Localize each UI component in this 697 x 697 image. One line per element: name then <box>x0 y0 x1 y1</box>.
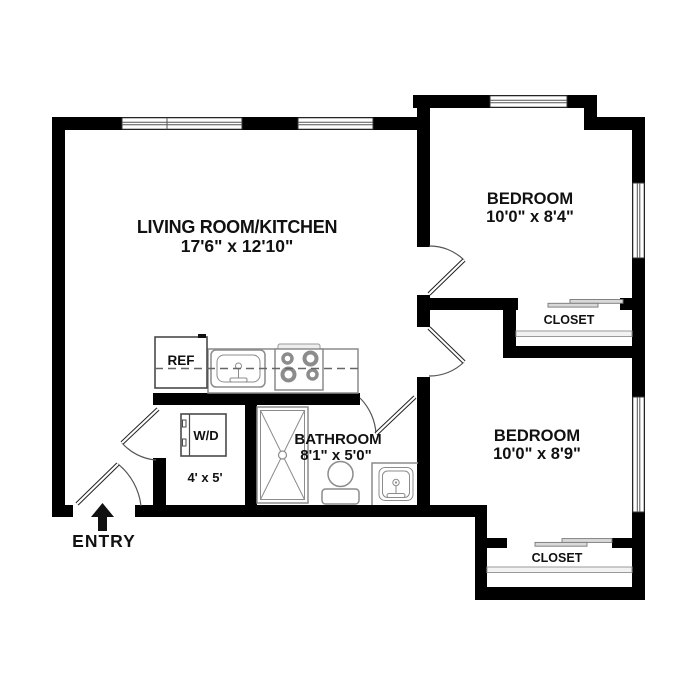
window-glass <box>490 96 567 107</box>
bedroom2-door-leaf-inner <box>429 328 464 362</box>
laundry-door-swing-arc <box>122 443 156 460</box>
closet2-shelf <box>487 567 632 573</box>
bathroom-dimensions: 8'1" x 5'0" <box>300 447 371 464</box>
living-room-dimensions: 17'6" x 12'10" <box>181 236 294 256</box>
bedroom1-door <box>429 246 464 294</box>
floor-plan: REF <box>0 0 697 697</box>
sink-faucet-dot <box>395 481 397 483</box>
window-glass <box>122 118 242 129</box>
closet1-label: CLOSET <box>544 313 595 327</box>
washer-dryer-hinge <box>183 420 187 427</box>
toilet-bowl <box>328 462 353 487</box>
entry-door <box>77 464 141 506</box>
walls <box>52 95 645 600</box>
sink-faucet-base <box>387 494 405 498</box>
bedroom2-door <box>429 328 464 376</box>
stove <box>275 344 323 390</box>
bathroom-sink <box>372 463 418 505</box>
floor-plan-svg: REF <box>0 0 697 697</box>
burner-icon <box>283 354 292 363</box>
wall-laundry-bathroom <box>245 393 257 505</box>
wall-closet1-bottom <box>503 346 633 358</box>
laundry-door-leaf-inner <box>122 409 158 443</box>
bathroom-door <box>360 397 415 434</box>
laundry-label: W/D <box>193 428 218 443</box>
bedroom1-side-window <box>633 183 644 258</box>
refrigerator: REF <box>155 334 207 388</box>
wall-bathroom-bedroom2 <box>417 377 430 517</box>
wall-closet2-top-left <box>487 538 507 548</box>
bedroom2-label: BEDROOM <box>494 427 580 445</box>
living-window-2 <box>298 118 373 129</box>
bathroom-label: BATHROOM <box>294 431 381 448</box>
entry-door-leaf-inner <box>77 464 118 504</box>
toilet-tank <box>322 489 359 504</box>
bedroom1-dimensions: 10'0" x 8'4" <box>486 208 574 226</box>
living-room-label: LIVING ROOM/KITCHEN <box>137 217 337 237</box>
entry-label: ENTRY <box>72 531 136 551</box>
closet1-shelf <box>516 331 632 337</box>
kitchen: REF <box>155 334 358 393</box>
wall-closet2-top-right <box>612 538 633 548</box>
bedroom1-door-leaf-inner <box>429 260 464 294</box>
burner-icon <box>305 353 317 365</box>
wall-living-bedroom1 <box>417 95 430 247</box>
laundry-door <box>122 409 158 460</box>
window-glass <box>633 397 644 512</box>
closet2-sliding-door-1 <box>562 539 612 543</box>
bedroom1-top-window <box>490 96 567 107</box>
entry-door-swing-arc <box>118 464 141 506</box>
wall-bottom-main <box>135 505 487 517</box>
toilet <box>322 462 359 505</box>
bedroom2-door-swing-arc <box>429 362 464 376</box>
bathroom-door-swing-arc <box>360 398 376 434</box>
wall-closet2-bottom <box>475 587 645 600</box>
refrigerator-handle <box>198 334 206 338</box>
bathroom-door-leaf-inner <box>376 397 415 434</box>
wall-closet2-left <box>475 517 487 599</box>
refrigerator-label: REF <box>168 353 195 368</box>
bedroom2-side-window <box>633 397 644 512</box>
bedroom2-dimensions: 10'0" x 8'9" <box>493 445 581 463</box>
washer-dryer-hinge <box>183 439 187 446</box>
living-window-1 <box>122 118 242 129</box>
bedroom1-door-swing-arc <box>429 246 464 260</box>
window-glass <box>298 118 373 129</box>
closet1-sliding-door-1 <box>570 300 623 304</box>
closet2-label: CLOSET <box>532 551 583 565</box>
wall-bedroom1-bottom <box>417 298 518 310</box>
wall-bottom-left-stub <box>52 505 73 517</box>
burner-icon <box>283 369 295 381</box>
laundry-dimensions: 4' x 5' <box>187 470 222 485</box>
closet2-sliding-door-2 <box>535 542 587 546</box>
shower-drain-icon <box>279 451 287 459</box>
entry-arrow-icon <box>91 503 114 531</box>
burner-icon <box>308 370 317 379</box>
closet1-sliding-door-2 <box>548 303 598 307</box>
bedroom1-label: BEDROOM <box>487 190 573 208</box>
wall-left-exterior <box>52 117 65 517</box>
window-glass <box>633 183 644 258</box>
wall-laundry-left <box>153 458 166 505</box>
